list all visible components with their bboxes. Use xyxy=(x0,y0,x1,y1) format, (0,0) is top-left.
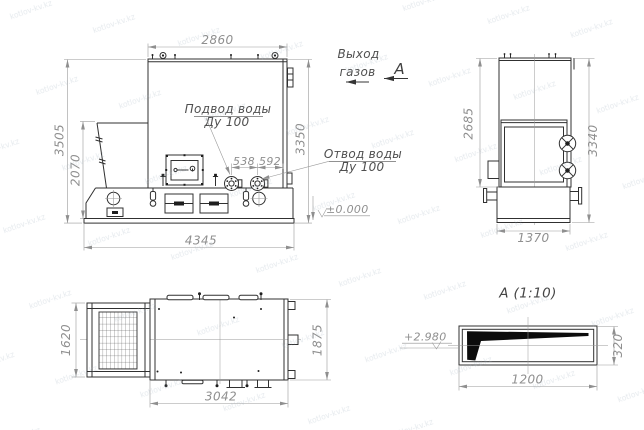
dim-width-top: 2860 xyxy=(201,33,233,47)
label-water-inlet-line1: Подвод воды xyxy=(185,102,272,116)
dim-height-right: 3350 xyxy=(294,123,308,155)
side-bottom-section xyxy=(484,187,582,223)
label-elevation: +2.980 xyxy=(404,331,447,344)
technical-drawing-sheet: kotlov-kv.kz kotlov-kv.kz xyxy=(0,0,644,430)
dim-side-height-outer: 3340 xyxy=(586,124,600,156)
label-gas-exit-line1: Выход xyxy=(338,47,380,61)
dim-detail-width: 1200 xyxy=(511,373,543,387)
dim-detail-height: 320 xyxy=(611,333,625,357)
dim-height-left-inner: 2070 xyxy=(69,154,83,186)
label-view-a: А xyxy=(393,60,404,78)
valve-handwheel-lower xyxy=(559,162,575,178)
dim-height-left-outer: 3505 xyxy=(53,124,67,156)
label-gas-exit-line2: газов xyxy=(340,65,376,79)
valve-handwheel-upper xyxy=(559,135,575,151)
base-frame xyxy=(84,219,294,224)
dim-side-height-inner: 2685 xyxy=(462,107,476,139)
boiler-drawing-svg: kotlov-kv.kz kotlov-kv.kz xyxy=(0,0,644,430)
label-water-inlet-line2: Ду 100 xyxy=(204,115,250,129)
grate-mesh xyxy=(99,312,137,369)
dim-plan-left: 1620 xyxy=(59,324,73,356)
dim-side-width-bottom: 1370 xyxy=(517,231,549,245)
label-water-outlet-line1: Отвод воды xyxy=(324,147,402,161)
dim-length-bottom: 4345 xyxy=(185,234,217,248)
detail-title: А (1:10) xyxy=(498,286,557,302)
inspection-hatch xyxy=(165,154,204,186)
grate-block xyxy=(87,303,150,377)
label-ground-level: ±0.000 xyxy=(326,203,369,216)
label-water-outlet-line2: Ду 100 xyxy=(339,160,385,174)
dim-plan-bottom: 3042 xyxy=(205,390,237,404)
dim-flange-spacing-b: 592 xyxy=(259,155,281,168)
dim-plan-right: 1875 xyxy=(311,324,325,356)
dim-flange-spacing-a: 538 xyxy=(233,155,255,168)
